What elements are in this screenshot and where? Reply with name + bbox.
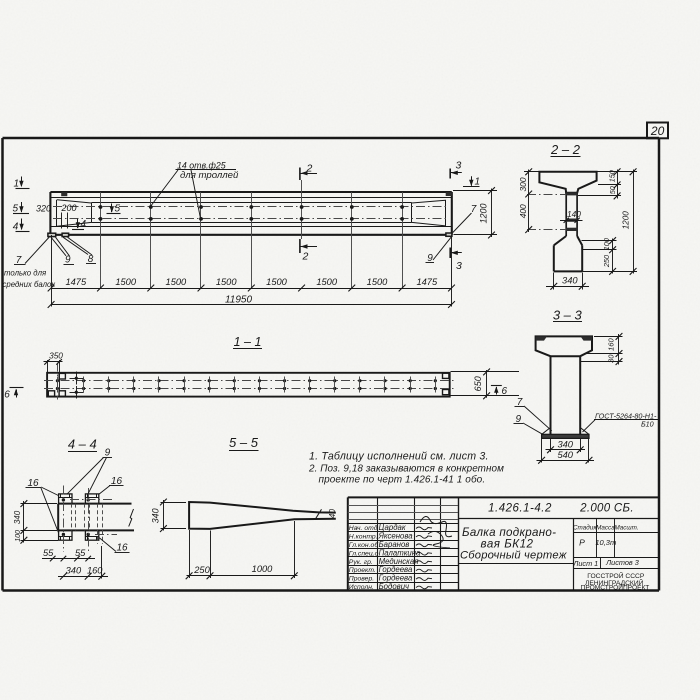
svg-text:250: 250 <box>602 254 611 268</box>
svg-text:Проект.: Проект. <box>349 567 376 574</box>
svg-text:4: 4 <box>81 219 87 230</box>
svg-text:16: 16 <box>117 542 129 553</box>
svg-text:средних балок: средних балок <box>3 280 56 289</box>
svg-text:1500: 1500 <box>216 277 238 287</box>
svg-text:1 – 1: 1 – 1 <box>234 335 262 349</box>
svg-text:2. Поз. 9,18 заказываются в ко: 2. Поз. 9,18 заказываются в конкретном <box>308 463 504 474</box>
svg-text:Исполн.: Исполн. <box>349 584 374 591</box>
svg-text:1200: 1200 <box>622 211 631 230</box>
svg-text:340: 340 <box>557 439 573 449</box>
svg-text:10,3т: 10,3т <box>595 538 616 547</box>
svg-text:Масшт.: Масшт. <box>614 524 638 531</box>
svg-text:6: 6 <box>502 386 508 397</box>
svg-text:1500: 1500 <box>367 277 389 287</box>
svg-text:250: 250 <box>193 565 210 575</box>
svg-text:Гл.спец.о: Гл.спец.о <box>349 550 379 557</box>
svg-text:9: 9 <box>105 447 111 458</box>
svg-text:Н.контр.: Н.контр. <box>349 533 378 540</box>
svg-text:1500: 1500 <box>166 277 188 287</box>
svg-text:4 – 4: 4 – 4 <box>68 436 97 451</box>
svg-text:50: 50 <box>608 186 617 194</box>
svg-text:Бодович: Бодович <box>379 582 410 591</box>
svg-text:3 – 3: 3 – 3 <box>553 307 583 322</box>
svg-text:5: 5 <box>115 204 121 215</box>
svg-text:Нач. отд: Нач. отд <box>349 524 378 532</box>
svg-text:320: 320 <box>36 204 51 214</box>
svg-text:400: 400 <box>518 204 528 218</box>
svg-text:Масса: Масса <box>596 524 615 531</box>
svg-text:340: 340 <box>13 510 22 524</box>
svg-text:200: 200 <box>61 203 77 213</box>
svg-text:Листов 3: Листов 3 <box>605 558 639 567</box>
svg-text:Б10: Б10 <box>641 420 654 429</box>
svg-text:для троллей: для троллей <box>180 170 239 181</box>
svg-text:9: 9 <box>65 254 71 265</box>
svg-text:2.000 СБ.: 2.000 СБ. <box>579 503 634 515</box>
svg-text:1.426.1-4.2: 1.426.1-4.2 <box>488 503 552 515</box>
svg-text:100: 100 <box>15 530 22 542</box>
svg-text:14 отв.ф25: 14 отв.ф25 <box>177 160 226 170</box>
svg-text:1500: 1500 <box>266 277 288 287</box>
svg-text:340: 340 <box>66 566 82 576</box>
svg-text:1500: 1500 <box>115 277 137 287</box>
svg-text:55: 55 <box>75 548 86 558</box>
svg-text:55: 55 <box>43 548 54 558</box>
svg-text:1000: 1000 <box>252 564 274 574</box>
svg-text:340: 340 <box>151 508 161 523</box>
svg-text:650: 650 <box>473 376 483 391</box>
svg-text:4: 4 <box>13 222 19 233</box>
svg-text:40: 40 <box>327 509 337 519</box>
svg-text:1475: 1475 <box>65 277 87 287</box>
svg-text:1200: 1200 <box>478 203 488 223</box>
svg-text:350: 350 <box>49 350 63 360</box>
svg-text:1: 1 <box>14 178 20 189</box>
svg-text:2: 2 <box>302 251 309 263</box>
svg-text:ПРОМСТРОЙПРОЕКТ: ПРОМСТРОЙПРОЕКТ <box>581 583 650 592</box>
svg-text:ГОССТРОЙ СССР: ГОССТРОЙ СССР <box>587 571 645 580</box>
svg-text:только для: только для <box>4 269 47 278</box>
svg-text:3: 3 <box>456 160 462 172</box>
svg-text:1475: 1475 <box>416 277 438 287</box>
svg-text:1: 1 <box>475 177 481 188</box>
svg-text:540: 540 <box>557 450 573 460</box>
svg-text:6: 6 <box>4 389 10 400</box>
svg-text:Провер.: Провер. <box>349 576 374 583</box>
svg-text:Сборочный чертеж: Сборочный чертеж <box>460 550 568 562</box>
svg-text:Лист 1: Лист 1 <box>572 559 598 568</box>
svg-text:300: 300 <box>518 177 528 191</box>
svg-text:160: 160 <box>87 566 103 576</box>
svg-text:340: 340 <box>562 275 578 285</box>
svg-text:1. Таблицу исполнений см. лис: 1. Таблицу исполнений см. лист 3. <box>309 450 489 462</box>
svg-text:100: 100 <box>602 237 611 250</box>
svg-text:11950: 11950 <box>225 294 253 305</box>
svg-text:проекте по черт 1.426.1-41 1 о: проекте по черт 1.426.1-41 1 обо. <box>319 473 486 485</box>
svg-text:20: 20 <box>650 124 665 138</box>
svg-text:2 – 2: 2 – 2 <box>550 142 581 157</box>
svg-text:Р: Р <box>579 538 585 548</box>
svg-text:2: 2 <box>306 163 313 175</box>
svg-text:160: 160 <box>606 337 615 350</box>
svg-text:Стадия: Стадия <box>573 523 597 531</box>
svg-text:5 – 5: 5 – 5 <box>229 435 259 450</box>
svg-text:7: 7 <box>471 204 477 215</box>
svg-text:1500: 1500 <box>316 277 338 287</box>
svg-text:140: 140 <box>567 209 581 219</box>
svg-text:Рук. гр.: Рук. гр. <box>349 559 373 566</box>
svg-text:150: 150 <box>608 170 617 182</box>
svg-text:5: 5 <box>13 204 19 215</box>
svg-text:3: 3 <box>456 260 462 272</box>
svg-text:30: 30 <box>607 354 616 363</box>
svg-text:Гл.кон.об: Гл.кон.об <box>349 541 380 549</box>
